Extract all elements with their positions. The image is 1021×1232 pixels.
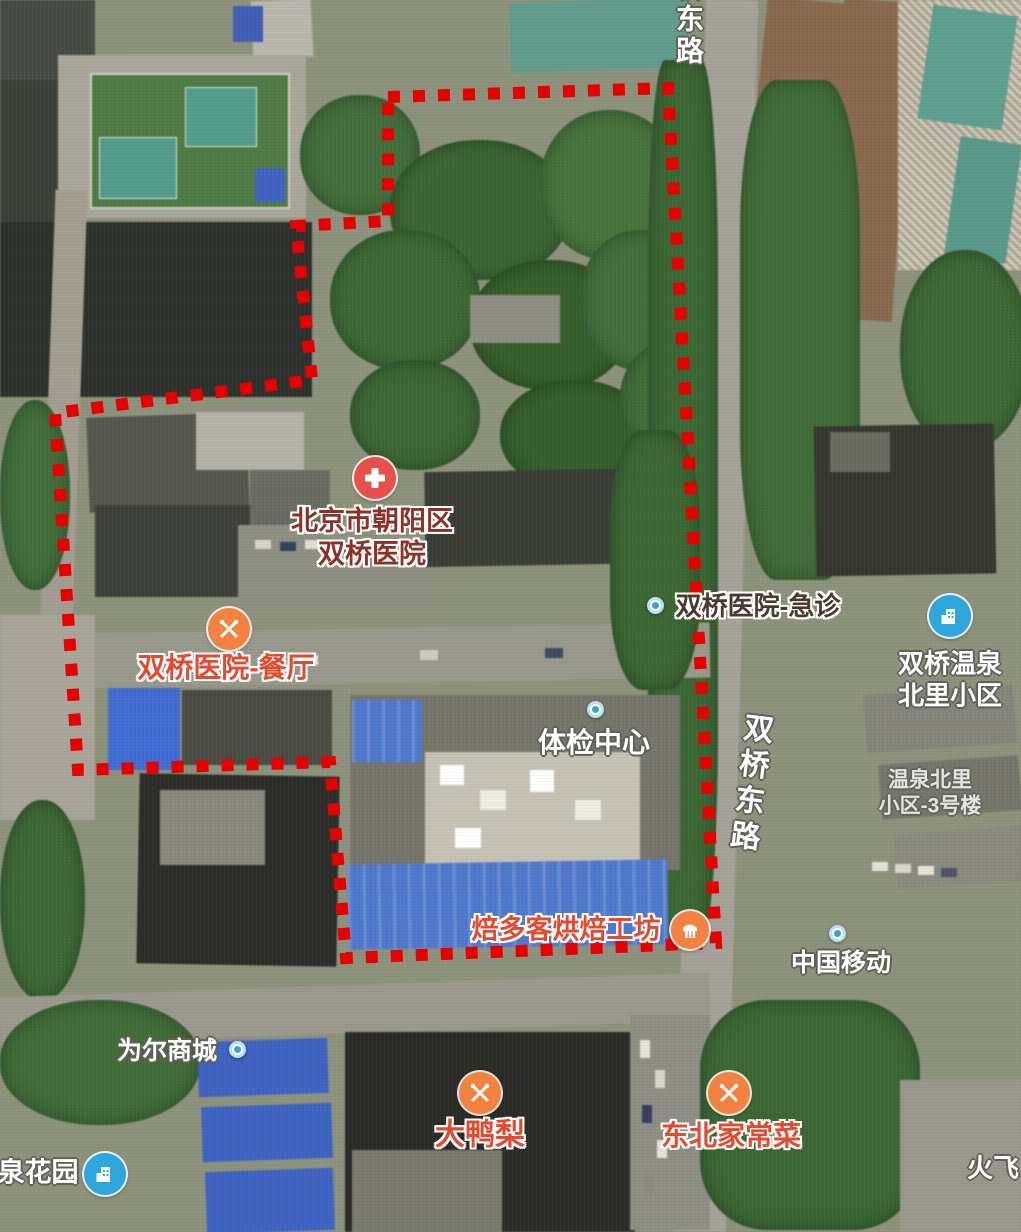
poi-exam-center-label[interactable]: 体检中心 [538, 726, 650, 760]
residential-icon [84, 1153, 126, 1195]
place-dot-icon [587, 701, 604, 718]
poi-bakery-label[interactable]: 焙多客烘焙工坊 [472, 914, 661, 947]
place-dot-icon [229, 1041, 246, 1058]
poi-dayali-label[interactable]: 大鸭梨 [435, 1118, 525, 1155]
restaurant-icon [708, 1072, 750, 1114]
poi-spring-garden-label[interactable]: 泉花园 [0, 1157, 79, 1190]
poi-weier-mall-marker[interactable] [229, 1041, 246, 1058]
poi-dongbei-marker[interactable] [708, 1072, 750, 1114]
satellite-map-canvas[interactable]: 双桥东路 桥东路 北京市朝阳区 双桥医院 双桥医院-餐厅 双桥医院-急诊 体检中… [0, 0, 1021, 1232]
bakery-icon [671, 911, 709, 949]
poi-community-label[interactable]: 双桥温泉 北里小区 [898, 648, 1002, 711]
poi-dongbei-label[interactable]: 东北家常菜 [661, 1119, 801, 1153]
poi-dayali-marker[interactable] [459, 1072, 501, 1114]
poi-emergency-marker[interactable] [647, 597, 664, 614]
poi-hospital-label[interactable]: 北京市朝阳区 双桥医院 [291, 505, 453, 571]
poi-emergency-label[interactable]: 双桥医院-急诊 [676, 591, 841, 623]
place-dot-icon [829, 925, 846, 942]
restaurant-icon [208, 608, 250, 650]
poi-china-mobile-marker[interactable] [829, 925, 846, 942]
poi-canteen-label[interactable]: 双桥医院-餐厅 [137, 651, 314, 685]
poi-canteen-marker[interactable] [208, 608, 250, 650]
poi-hospital-marker[interactable] [354, 457, 396, 499]
residential-icon [929, 595, 971, 637]
poi-spring-garden-marker[interactable] [84, 1153, 126, 1195]
poi-community-marker[interactable] [929, 595, 971, 637]
red-cross-icon [354, 457, 396, 499]
poi-huofei-label: 火飞 [967, 1153, 1019, 1185]
poi-bakery-marker[interactable] [671, 911, 709, 949]
building-3-label: 温泉北里 小区-3号楼 [879, 767, 982, 818]
poi-exam-center-marker[interactable] [587, 701, 604, 718]
road-label-top-partial: 桥东路 [668, 0, 708, 68]
poi-china-mobile-label[interactable]: 中国移动 [791, 948, 891, 979]
restaurant-icon [459, 1072, 501, 1114]
place-dot-icon [647, 597, 664, 614]
poi-weier-mall-label[interactable]: 为尔商城 [117, 1036, 217, 1067]
